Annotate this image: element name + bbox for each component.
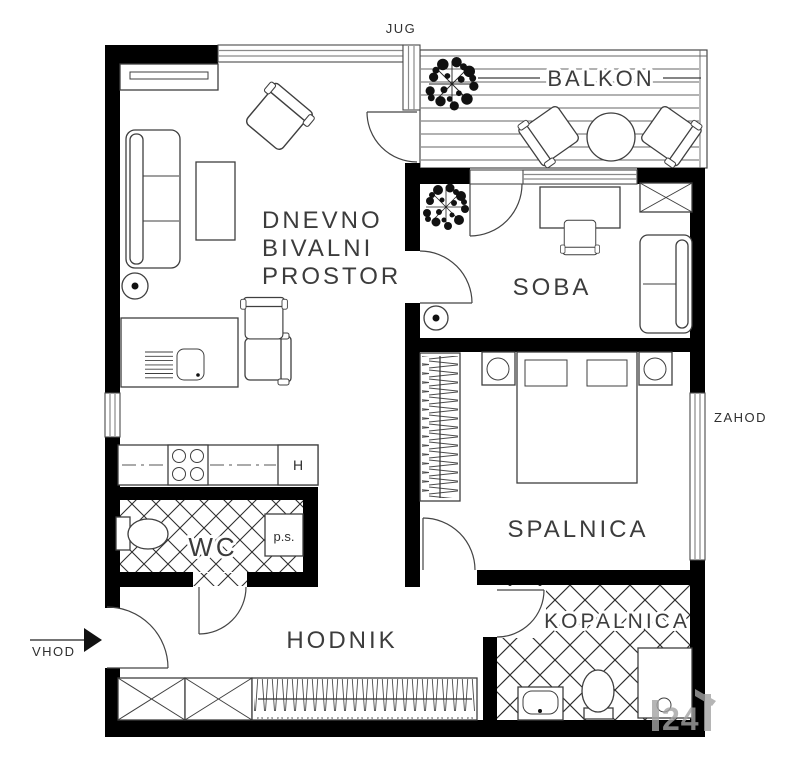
armchair: [240, 80, 316, 156]
dining-table-with-sink: [121, 318, 238, 387]
coffee-table: [196, 162, 235, 240]
living-room: DNEVNO BIVALNI PROSTOR: [120, 64, 401, 387]
soba-room: SOBA: [423, 183, 692, 333]
bathroom-sink: [518, 687, 563, 720]
kitchen-window: [105, 393, 120, 437]
bed: [517, 352, 637, 483]
wc-doorway-tiles: [193, 573, 247, 586]
nightstand-right: [639, 352, 672, 385]
dining-chair-right: [245, 333, 291, 385]
bathroom-toilet: [582, 670, 614, 719]
entrance-marker: VHOD: [30, 628, 102, 659]
plant-icon: [423, 184, 469, 231]
compass-west-label: ZAHOD: [714, 410, 767, 425]
balcony-label: BALKON: [547, 66, 654, 91]
soba-floor-lamp: [424, 306, 448, 330]
sofa: [126, 130, 180, 268]
tv-sideboard: [120, 64, 218, 90]
entrance-arrow-icon: [84, 628, 102, 652]
living-label-line1: DNEVNO: [262, 207, 383, 234]
bedroom-label: SPALNICA: [508, 516, 649, 543]
bedroom-door: [423, 518, 475, 570]
compass-south-label: JUG: [386, 21, 417, 36]
floor-lamp: [122, 273, 148, 299]
balcony-living-door: [367, 112, 417, 162]
wc-door: [199, 587, 246, 634]
entrance-label: VHOD: [32, 644, 76, 659]
soba-wardrobe: [640, 183, 692, 212]
living-top-window: [218, 45, 403, 62]
living-label-line3: PROSTOR: [262, 263, 401, 290]
fridge-label: H: [293, 457, 303, 473]
soba-balcony-door: [470, 184, 522, 236]
balcony-table: [587, 113, 635, 161]
living-corner-window: [403, 45, 420, 110]
living-label-line2: BIVALNI: [262, 235, 373, 262]
bathroom: KOPALNICA: [497, 585, 692, 720]
hallway-closet: [118, 678, 477, 720]
stove: [168, 445, 208, 485]
dining-chair-top: [241, 298, 288, 339]
floor-plan-drawing: BALKON: [0, 0, 789, 768]
hallway: HODNIK: [118, 627, 477, 720]
entrance-door: [107, 607, 168, 668]
bedroom-window: [690, 393, 705, 560]
bedroom: SPALNICA: [420, 352, 672, 543]
floor-plan: BALKON: [0, 0, 789, 768]
watermark-text: 24: [662, 701, 700, 737]
desk-chair: [561, 220, 600, 255]
kitchen: H: [118, 445, 318, 485]
washing-machine: p.s.: [265, 514, 303, 556]
nightstand-left: [482, 352, 515, 385]
wc-toilet: [116, 517, 168, 550]
hallway-label: HODNIK: [286, 627, 397, 654]
balcony: BALKON: [420, 50, 707, 170]
soba-window: [470, 170, 637, 184]
soba-door: [420, 251, 472, 303]
fridge: H: [278, 445, 318, 485]
soba-sofa: [640, 235, 692, 333]
soba-label: SOBA: [513, 274, 592, 301]
wc-label: WC: [188, 532, 237, 562]
bedroom-wardrobe: [420, 353, 460, 501]
washing-machine-label: p.s.: [274, 529, 295, 544]
bathroom-label: KOPALNICA: [544, 610, 690, 633]
